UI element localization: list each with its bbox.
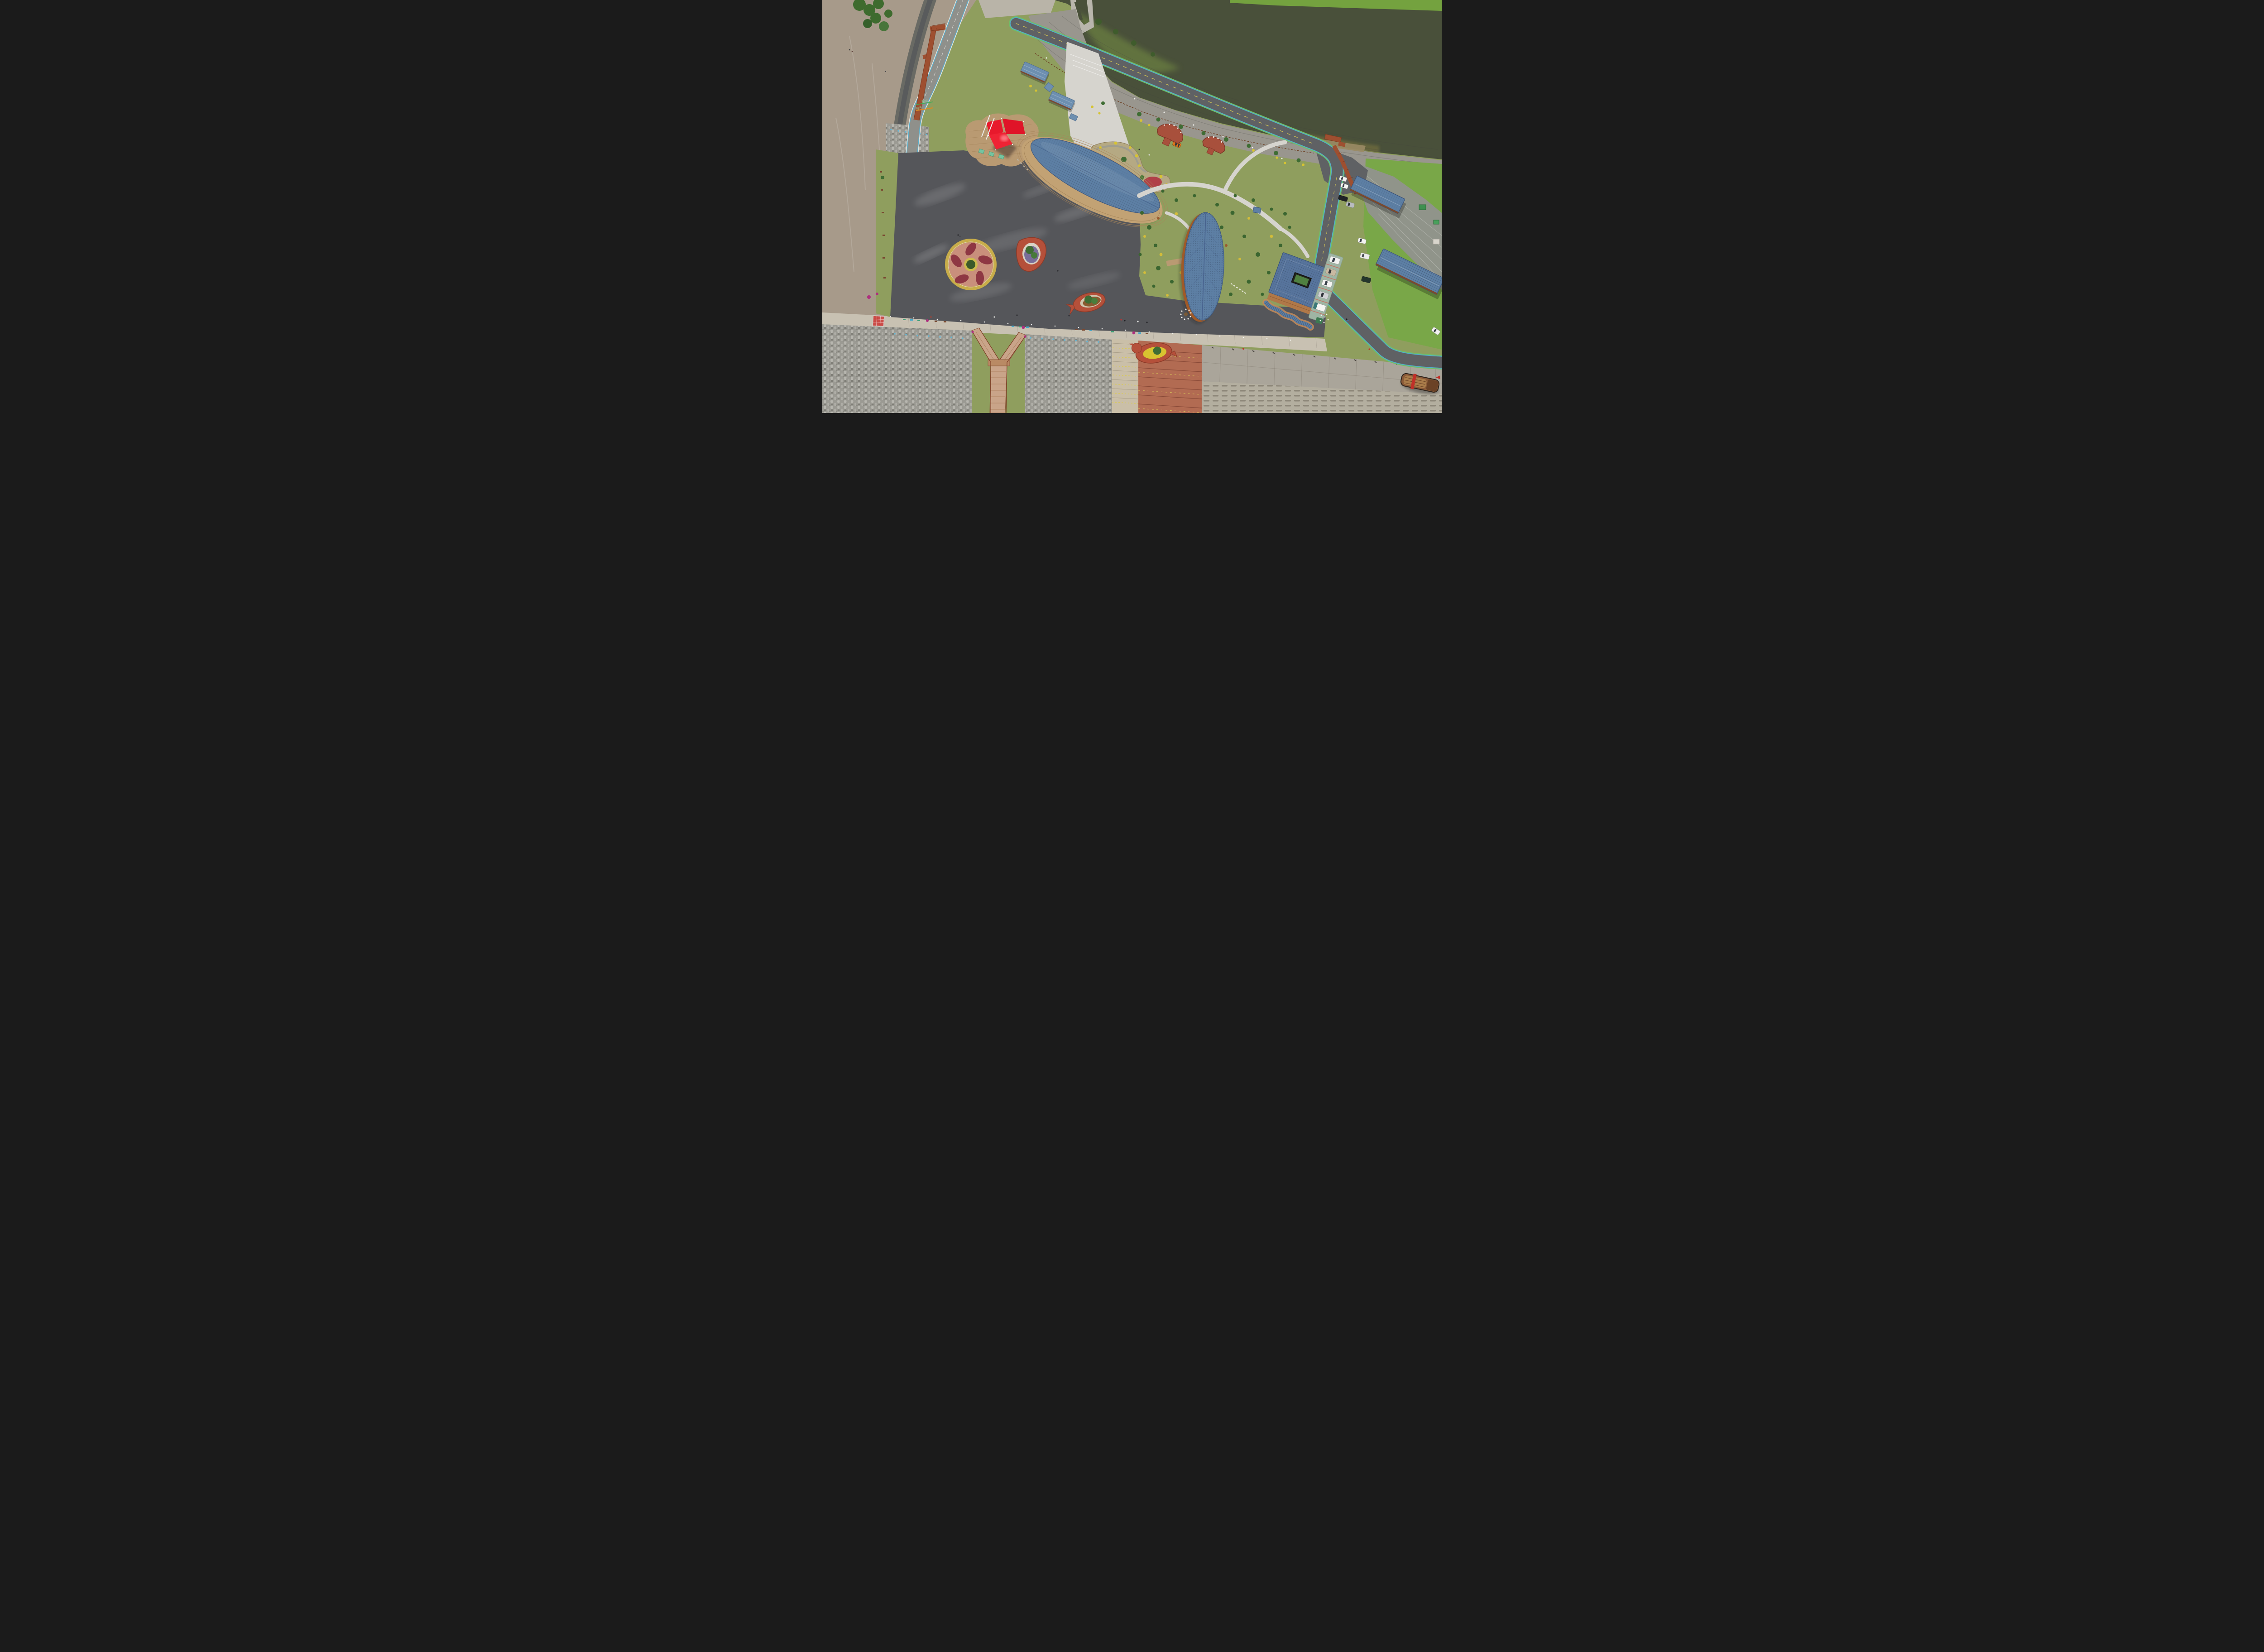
magenta-flower-mound bbox=[1022, 326, 1025, 329]
green-shed bbox=[1434, 220, 1439, 224]
aerial-photo-stage: 起点 骑行 bbox=[822, 0, 1442, 413]
green-shed bbox=[1419, 205, 1426, 210]
life-ring bbox=[1242, 348, 1244, 350]
playground-structure bbox=[1253, 207, 1261, 214]
center-tree bbox=[966, 260, 975, 269]
flower-pot bbox=[1024, 335, 1026, 337]
flower-pot bbox=[971, 331, 974, 333]
magenta-flower-mound bbox=[926, 319, 929, 322]
circular-flower-bed bbox=[945, 239, 997, 290]
heart-planter bbox=[867, 295, 871, 299]
scene-canvas: 起点 骑行 bbox=[822, 0, 1442, 413]
white-block bbox=[1433, 239, 1439, 244]
magenta-flower-mound bbox=[1132, 331, 1136, 335]
tetrapod-field-bottom-mid bbox=[1025, 334, 1112, 413]
tetrapod-field-bottom-left bbox=[822, 324, 972, 413]
greenhouse bbox=[873, 316, 884, 326]
